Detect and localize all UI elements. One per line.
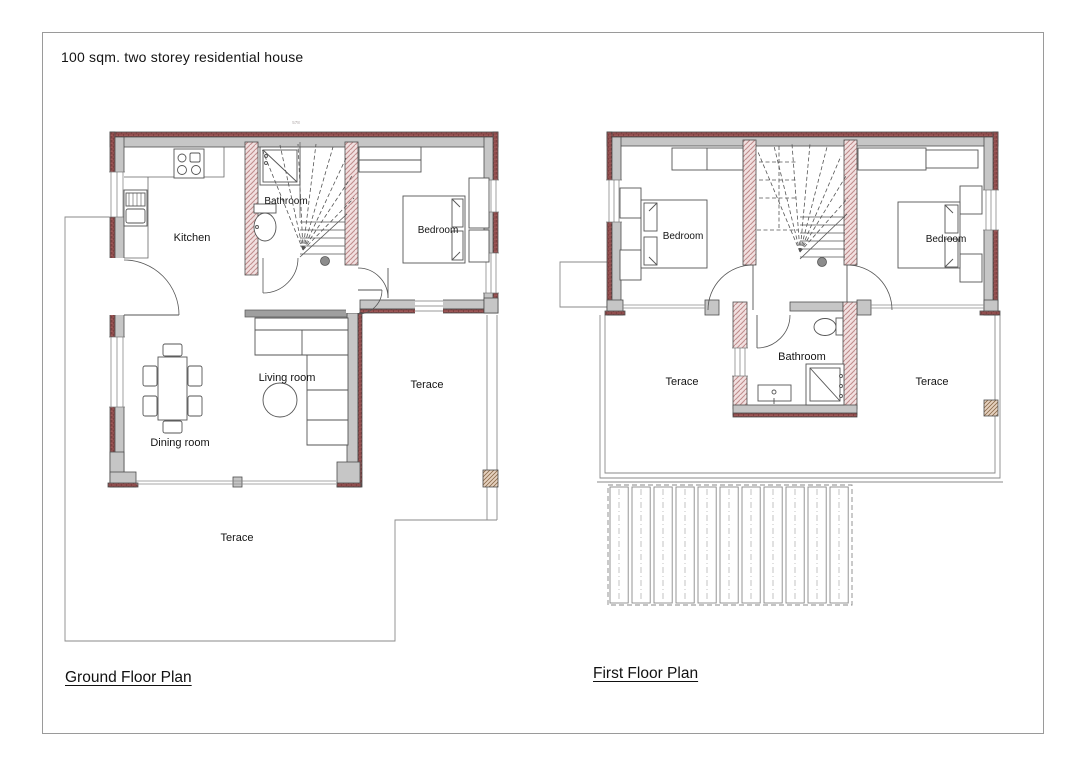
first-terrace-railing	[597, 315, 1003, 482]
ground-toilet	[254, 204, 276, 241]
first-wardrobe-right	[858, 148, 978, 170]
ground-nightstands	[469, 178, 489, 262]
ground-floor-plan: Kitchen Bathroom	[40, 112, 520, 657]
first-shower	[806, 364, 844, 405]
first-floor-plan: Bedroom Bedroom Bathroom Tera	[548, 112, 1020, 622]
first-bedroom-right-label: Bedroom	[926, 234, 967, 245]
ground-terrace-side-label: Terace	[410, 379, 443, 391]
first-bedroom-left-label: Bedroom	[663, 231, 704, 242]
ground-wardrobe	[359, 147, 421, 172]
dimension-text: 578	[292, 120, 300, 125]
bathroom-door	[263, 258, 298, 293]
first-terrace-left-label: Terace	[665, 376, 698, 388]
pergola	[608, 485, 852, 605]
living-half-wall	[245, 310, 347, 317]
dining-room-label: Dining room	[150, 437, 209, 449]
ground-bathroom-label: Bathroom	[264, 196, 307, 207]
ground-terrace-outline	[65, 217, 497, 641]
stove	[174, 149, 204, 178]
ground-terrace-front-label: Terace	[220, 532, 253, 544]
kitchen-sink	[124, 190, 147, 226]
first-bathroom-window	[732, 348, 748, 376]
ground-bedroom-label: Bedroom	[418, 225, 459, 236]
ground-stair-newel	[321, 257, 330, 266]
first-floor-plan-title: First Floor Plan	[593, 665, 698, 683]
coffee-table	[263, 383, 297, 417]
first-bathroom-door	[757, 315, 790, 348]
drawing-title: 100 sqm. two storey residential house	[61, 49, 303, 65]
railing-post	[984, 400, 998, 416]
left-balcony-outline	[560, 262, 612, 307]
first-wardrobe-left	[672, 148, 743, 170]
first-stairs	[757, 144, 848, 259]
first-terrace-right-label: Terace	[915, 376, 948, 388]
terrace-corner-post	[483, 470, 498, 487]
entrance-door	[109, 258, 179, 315]
ground-shower	[260, 147, 300, 185]
first-sink	[758, 385, 791, 404]
kitchen-label: Kitchen	[174, 232, 211, 244]
first-toilet	[814, 318, 843, 336]
first-bathroom-label: Bathroom	[778, 351, 826, 363]
floorplan-sheet: { "page": { "title": "100 sqm. two store…	[0, 0, 1085, 768]
living-room-label: Living room	[259, 372, 316, 384]
first-stair-newel	[818, 258, 827, 267]
ground-floor-plan-title: Ground Floor Plan	[65, 669, 192, 687]
dining-set	[143, 344, 202, 433]
